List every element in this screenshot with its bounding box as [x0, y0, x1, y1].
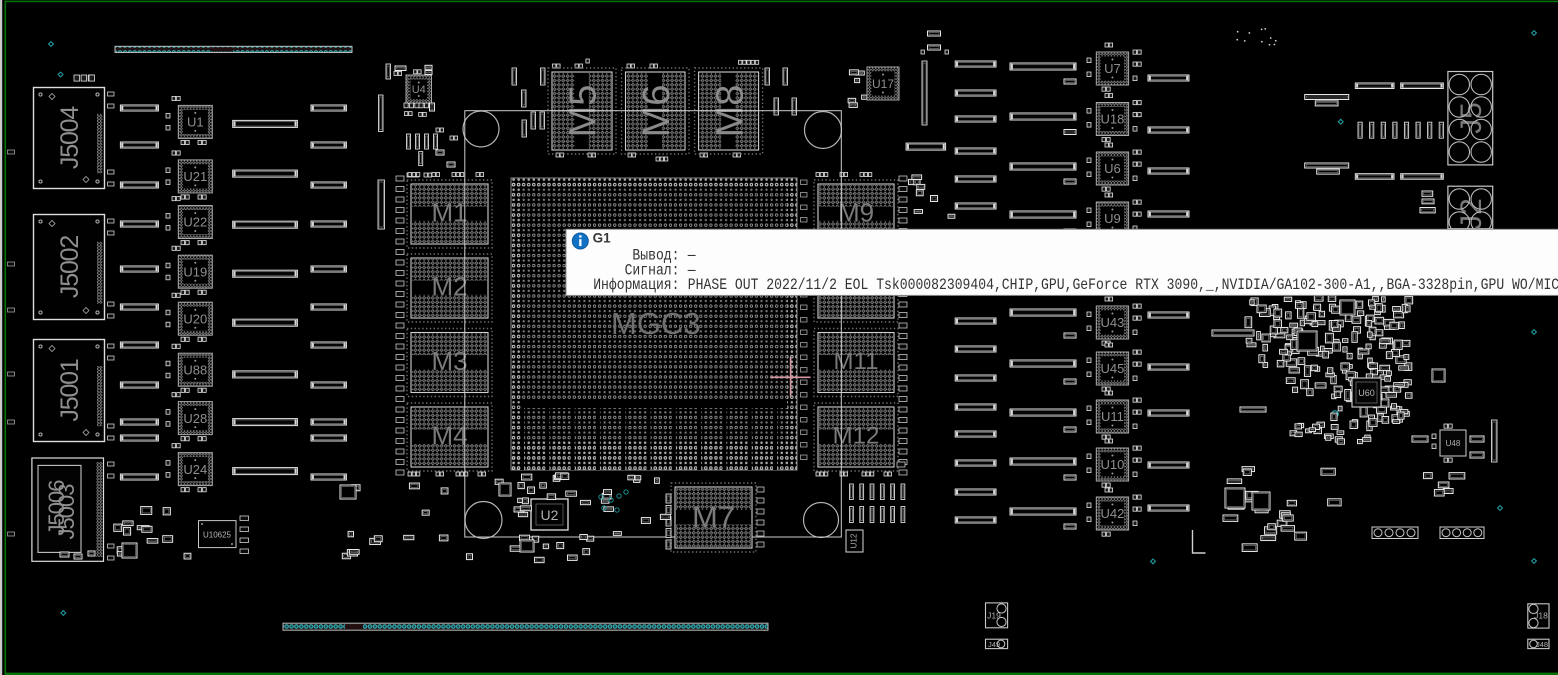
- svg-text:PHASE OUT 2022/11/2 EOL Tsk000: PHASE OUT 2022/11/2 EOL Tsk000082309404,…: [688, 276, 1558, 294]
- svg-text:J5002: J5002: [56, 236, 84, 298]
- svg-text:M2: M2: [431, 271, 467, 301]
- svg-text:U10: U10: [1101, 457, 1125, 472]
- svg-text:J19: J19: [987, 611, 1001, 621]
- svg-text:U17: U17: [872, 77, 894, 91]
- svg-text:M7: M7: [692, 500, 735, 535]
- svg-text:M4: M4: [431, 420, 467, 450]
- svg-text:U42: U42: [1101, 506, 1125, 521]
- svg-text:M3: M3: [431, 346, 467, 376]
- svg-text:U2: U2: [541, 507, 559, 523]
- svg-text:U10625: U10625: [203, 531, 232, 540]
- svg-text:U7: U7: [1104, 61, 1121, 76]
- svg-text:U43: U43: [1101, 315, 1125, 330]
- svg-text:J18: J18: [1534, 611, 1548, 621]
- svg-text:J49: J49: [988, 640, 1000, 649]
- svg-text:U4: U4: [412, 84, 426, 96]
- svg-text:U18: U18: [1101, 112, 1125, 127]
- svg-text:U28: U28: [183, 411, 207, 426]
- svg-text:U45: U45: [1101, 361, 1125, 376]
- svg-text:Информация:: Информация:: [593, 276, 679, 294]
- svg-text:U88: U88: [183, 362, 207, 377]
- svg-text:U12: U12: [850, 533, 859, 548]
- svg-text:U48: U48: [1446, 439, 1461, 448]
- svg-text:J5001: J5001: [56, 359, 84, 421]
- svg-text:U6: U6: [1104, 161, 1121, 176]
- svg-text:U1: U1: [187, 115, 204, 130]
- svg-text:G1: G1: [593, 230, 612, 245]
- svg-text:MGC3: MGC3: [611, 306, 701, 341]
- svg-text:J5004: J5004: [56, 106, 84, 169]
- svg-text:U24: U24: [183, 462, 207, 477]
- svg-text:U20: U20: [183, 311, 207, 326]
- svg-text:J5003: J5003: [54, 484, 79, 540]
- svg-text:U21: U21: [183, 169, 207, 184]
- svg-text:M1: M1: [431, 197, 467, 227]
- svg-text:M12: M12: [833, 423, 880, 450]
- svg-text:U22: U22: [183, 215, 207, 230]
- svg-text:U19: U19: [183, 264, 207, 279]
- svg-text:M9: M9: [838, 197, 874, 227]
- svg-text:U60: U60: [1358, 388, 1375, 398]
- svg-text:J48: J48: [1536, 640, 1548, 649]
- svg-text:U11: U11: [1101, 409, 1124, 424]
- svg-text:U9: U9: [1104, 211, 1121, 226]
- svg-text:M11: M11: [834, 348, 879, 375]
